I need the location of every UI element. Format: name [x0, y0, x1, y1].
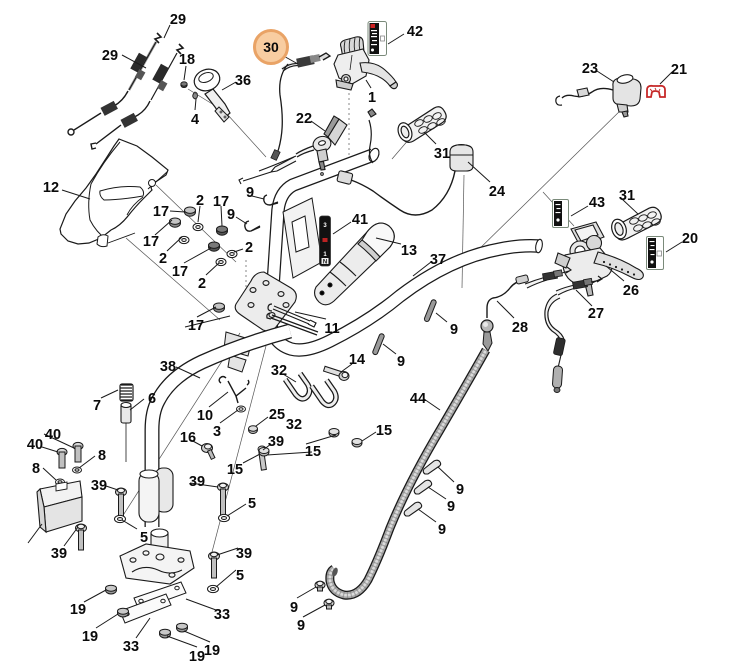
svg-text:8: 8: [98, 448, 106, 464]
svg-text:32: 32: [286, 417, 302, 433]
svg-text:15: 15: [376, 423, 392, 439]
svg-text:9: 9: [397, 354, 405, 370]
svg-text:33: 33: [214, 607, 230, 623]
svg-text:13: 13: [401, 243, 417, 259]
svg-text:2: 2: [198, 276, 206, 292]
svg-text:26: 26: [623, 283, 639, 299]
svg-text:18: 18: [179, 52, 195, 68]
svg-text:40: 40: [45, 427, 61, 443]
svg-text:9: 9: [246, 185, 254, 201]
svg-text:31: 31: [434, 146, 450, 162]
svg-text:39: 39: [236, 546, 252, 562]
svg-text:17: 17: [153, 204, 169, 220]
svg-text:44: 44: [410, 391, 426, 407]
svg-text:9: 9: [456, 482, 464, 498]
svg-text:39: 39: [91, 478, 107, 494]
svg-text:N: N: [323, 260, 327, 266]
svg-text:17: 17: [188, 318, 204, 334]
svg-text:17: 17: [143, 234, 159, 250]
svg-text:2: 2: [159, 251, 167, 267]
svg-text:30: 30: [263, 39, 279, 55]
svg-text:5: 5: [248, 496, 256, 512]
svg-text:17: 17: [172, 264, 188, 280]
svg-text:28: 28: [512, 320, 528, 336]
svg-text:9: 9: [227, 207, 235, 223]
svg-text:19: 19: [204, 643, 220, 659]
svg-text:37: 37: [430, 252, 446, 268]
svg-text:5: 5: [236, 568, 244, 584]
svg-text:10: 10: [197, 408, 213, 424]
svg-text:12: 12: [43, 180, 59, 196]
svg-text:9: 9: [450, 322, 458, 338]
svg-text:6: 6: [148, 391, 156, 407]
svg-text:27: 27: [588, 306, 604, 322]
svg-text:14: 14: [349, 352, 365, 368]
svg-text:32: 32: [271, 363, 287, 379]
svg-text:39: 39: [189, 474, 205, 490]
svg-text:21: 21: [671, 62, 687, 78]
svg-text:19: 19: [82, 629, 98, 645]
svg-text:16: 16: [180, 430, 196, 446]
svg-text:9: 9: [290, 600, 298, 616]
svg-text:36: 36: [235, 73, 251, 89]
svg-text:29: 29: [170, 12, 186, 28]
svg-text:39: 39: [51, 546, 67, 562]
svg-text:20: 20: [682, 231, 698, 247]
svg-text:19: 19: [189, 649, 205, 665]
svg-text:2: 2: [245, 240, 253, 256]
svg-text:39: 39: [268, 434, 284, 450]
svg-text:40: 40: [27, 437, 43, 453]
svg-text:7: 7: [93, 398, 101, 414]
svg-text:5: 5: [140, 530, 148, 546]
svg-text:24: 24: [489, 184, 505, 200]
svg-text:15: 15: [227, 462, 243, 478]
svg-text:9: 9: [297, 618, 305, 634]
svg-text:43: 43: [589, 195, 605, 211]
svg-text:1: 1: [368, 90, 376, 106]
svg-text:41: 41: [352, 212, 368, 228]
svg-text:23: 23: [582, 61, 598, 77]
svg-text:22: 22: [296, 111, 312, 127]
svg-text:11: 11: [324, 321, 339, 337]
svg-text:19: 19: [70, 602, 86, 618]
svg-text:33: 33: [123, 639, 139, 655]
svg-text:15: 15: [305, 444, 321, 460]
svg-text:38: 38: [160, 359, 176, 375]
svg-text:9: 9: [438, 522, 446, 538]
svg-text:4: 4: [191, 112, 199, 128]
svg-text:9: 9: [447, 499, 455, 515]
svg-text:42: 42: [407, 24, 423, 40]
svg-text:29: 29: [102, 48, 118, 64]
svg-text:2: 2: [196, 193, 204, 209]
svg-text:8: 8: [32, 461, 40, 477]
svg-text:3: 3: [213, 424, 221, 440]
svg-text:31: 31: [619, 188, 635, 204]
svg-text:25: 25: [269, 407, 285, 423]
